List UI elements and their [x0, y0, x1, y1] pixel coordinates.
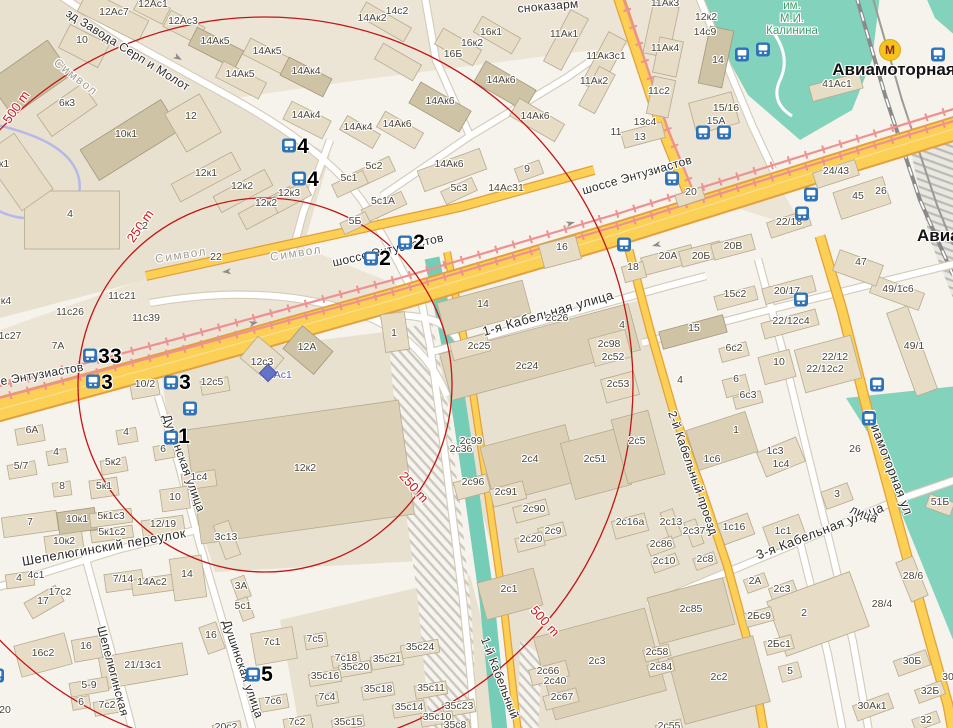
map-view[interactable]: зд Завода Серп и МолотСимволСимволСимвол…: [0, 0, 953, 728]
building: [46, 448, 68, 465]
bus-stop-icon[interactable]: [0, 669, 4, 688]
bus-stop-icon[interactable]: [364, 252, 378, 271]
bus-stop-icon[interactable]: [804, 188, 818, 207]
metro-icon[interactable]: М: [879, 39, 901, 61]
bus-stop-icon[interactable]: [292, 172, 306, 191]
bus-stop-icon[interactable]: [83, 349, 97, 368]
bus-stop-icon[interactable]: [246, 668, 260, 687]
building: [380, 312, 409, 353]
building: [116, 427, 138, 444]
building: [251, 627, 298, 666]
building: [52, 481, 72, 497]
bus-stop-icon[interactable]: [862, 412, 876, 431]
bus-stop-icon[interactable]: [870, 378, 884, 397]
bus-stop-icon[interactable]: [183, 402, 197, 421]
bus-stop-icon[interactable]: [164, 376, 178, 395]
bus-stop-icon[interactable]: [794, 293, 808, 312]
bus-stop-icon[interactable]: [282, 139, 296, 158]
bus-stop-icon[interactable]: [735, 48, 749, 67]
building: [71, 636, 102, 663]
bus-stop-icon[interactable]: [86, 375, 100, 394]
bus-stop-icon[interactable]: [696, 126, 710, 145]
bus-stop-icon[interactable]: [756, 43, 770, 62]
building: [160, 486, 191, 512]
bus-stop-icon[interactable]: [717, 126, 731, 145]
bus-stop-icon[interactable]: [164, 431, 178, 450]
bus-stop-icon[interactable]: [931, 48, 945, 67]
map-canvas: [0, 0, 953, 728]
bus-stop-icon[interactable]: [795, 207, 809, 226]
building: [25, 191, 120, 249]
building: [169, 555, 207, 601]
bus-stop-icon[interactable]: [617, 238, 631, 257]
bus-stop-icon[interactable]: [398, 236, 412, 255]
bus-stop-icon[interactable]: [665, 172, 679, 191]
